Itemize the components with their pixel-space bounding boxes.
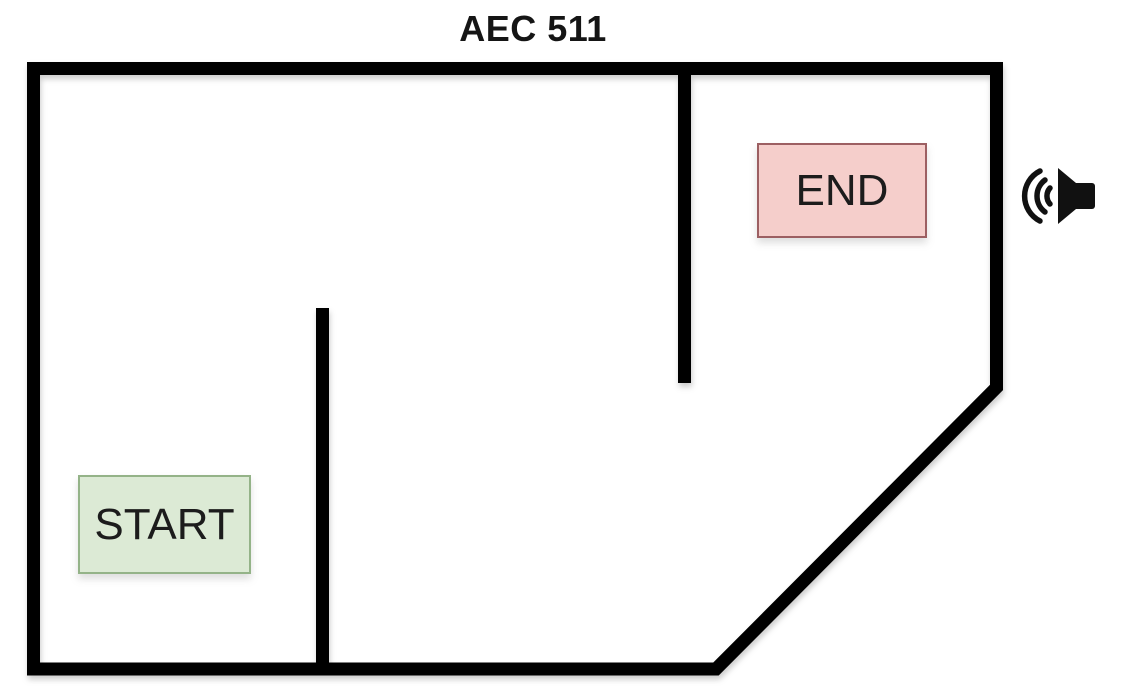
speaker-sound-waves-icon (1010, 162, 1098, 232)
room-walls-drawing (0, 0, 1124, 696)
floor-plan-diagram: AEC 511 START END (0, 0, 1124, 696)
start-zone: START (78, 475, 251, 574)
speaker-body (1058, 168, 1095, 224)
end-zone: END (757, 143, 927, 238)
end-zone-label: END (796, 166, 889, 216)
start-zone-label: START (94, 500, 234, 550)
sound-wave-arcs (1025, 171, 1050, 221)
